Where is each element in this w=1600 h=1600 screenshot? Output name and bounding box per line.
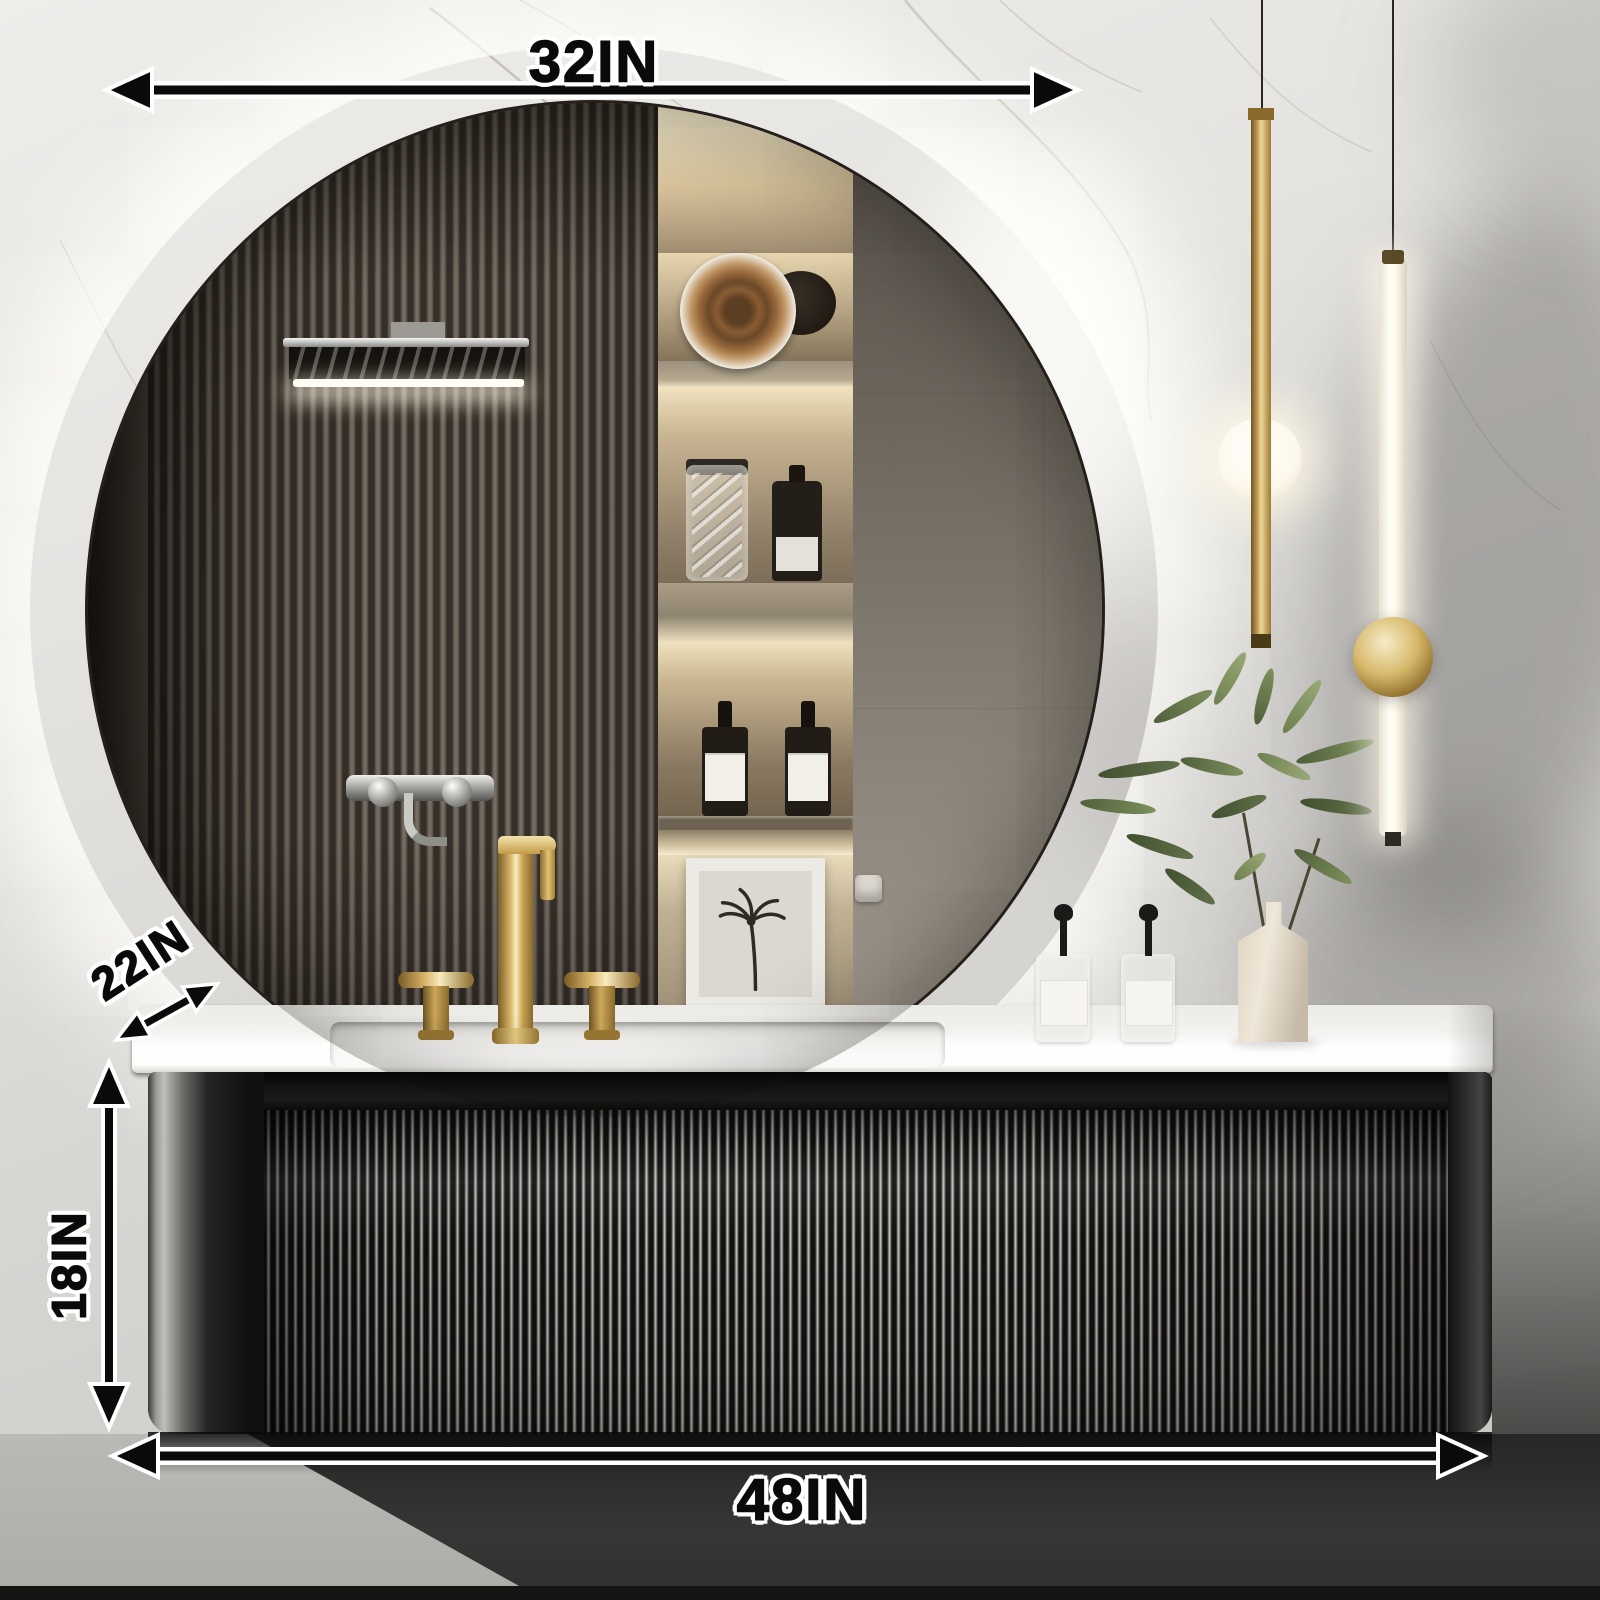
pendant-cord (1392, 0, 1394, 258)
bottle-label (1125, 980, 1173, 1026)
gold-faucet (498, 836, 556, 1042)
faucet-riser (498, 850, 533, 1042)
olive-branch-plant (1060, 660, 1360, 950)
stacked-plates (680, 253, 796, 369)
wall-shadow-blob (1430, 0, 1600, 200)
jar-spiral-texture (692, 473, 742, 577)
niche-shelf-board (658, 816, 853, 830)
counter-right-shade (1447, 1005, 1493, 1073)
bottle-label (705, 753, 745, 801)
fluted-vanity-cabinet (148, 1072, 1492, 1434)
bottle-label (1040, 980, 1088, 1026)
handle-stem (589, 986, 615, 1034)
bottle-cap (789, 465, 805, 483)
light-switch (855, 875, 882, 902)
floor-shadow-strip (0, 1586, 1600, 1600)
handle-stem (423, 986, 449, 1034)
cabinet-top-band (148, 1072, 1492, 1110)
soap-pump-bottle (1036, 954, 1090, 1042)
cabinet-left-cap (148, 1072, 264, 1434)
handle-foot (584, 1030, 620, 1040)
dark-bottle (702, 701, 748, 816)
faucet-spout-tip (540, 850, 555, 900)
pendant-rod-collar (1248, 108, 1274, 120)
pump-stem (1145, 918, 1152, 956)
rack-light-strip (293, 379, 524, 387)
dimension-label-cabinet-width: 48IN (737, 1467, 868, 1534)
cabinet-shading (264, 1110, 1448, 1434)
handle-foot (418, 1030, 454, 1040)
slat-wall-shading (148, 103, 660, 1117)
niche-glow-band (658, 830, 853, 855)
pump-stem (1060, 918, 1067, 956)
dimension-label-mirror-width: 32IN (529, 29, 660, 96)
mirror-reflection-shelf-light (283, 338, 529, 396)
tap-handle (368, 777, 398, 807)
pendant-led-tube (1379, 258, 1407, 836)
pendant-gold-sphere (1353, 617, 1433, 697)
round-led-mirror (85, 100, 1105, 1120)
tap-spout (404, 793, 447, 846)
gold-faucet-handle-left (398, 972, 474, 1042)
rack-slotted-body (289, 347, 525, 379)
pendant-brass-rod (1251, 108, 1271, 646)
pendant-tube-cap (1382, 250, 1404, 264)
pendant-tube-cap (1385, 832, 1401, 846)
faucet-base (492, 1028, 539, 1044)
wall-shade-right-of-cabinet (1492, 1002, 1600, 1434)
soap-pump-bottle (1121, 954, 1175, 1042)
pendant-rod-cap (1251, 634, 1271, 648)
bottle-label (776, 537, 818, 571)
niche-top-glow (658, 103, 853, 253)
gold-faucet-handle-right (564, 972, 640, 1042)
rack-chrome-bar (283, 338, 529, 347)
dimension-label-cabinet-height: 18IN (43, 1210, 98, 1319)
dark-bottle (785, 701, 831, 816)
amber-bottle (772, 481, 822, 581)
bottle-label (788, 753, 828, 801)
glass-jar (686, 465, 748, 581)
mirror-reflection-wall-faucet (346, 775, 494, 847)
bathroom-vanity-scene: 32IN 22IN 18IN 48IN (0, 0, 1600, 1600)
pendant-cord (1261, 0, 1263, 110)
cabinet-right-cap (1448, 1072, 1492, 1434)
niche-shelf-divider (658, 583, 853, 643)
framed-palm-print (686, 858, 825, 1010)
